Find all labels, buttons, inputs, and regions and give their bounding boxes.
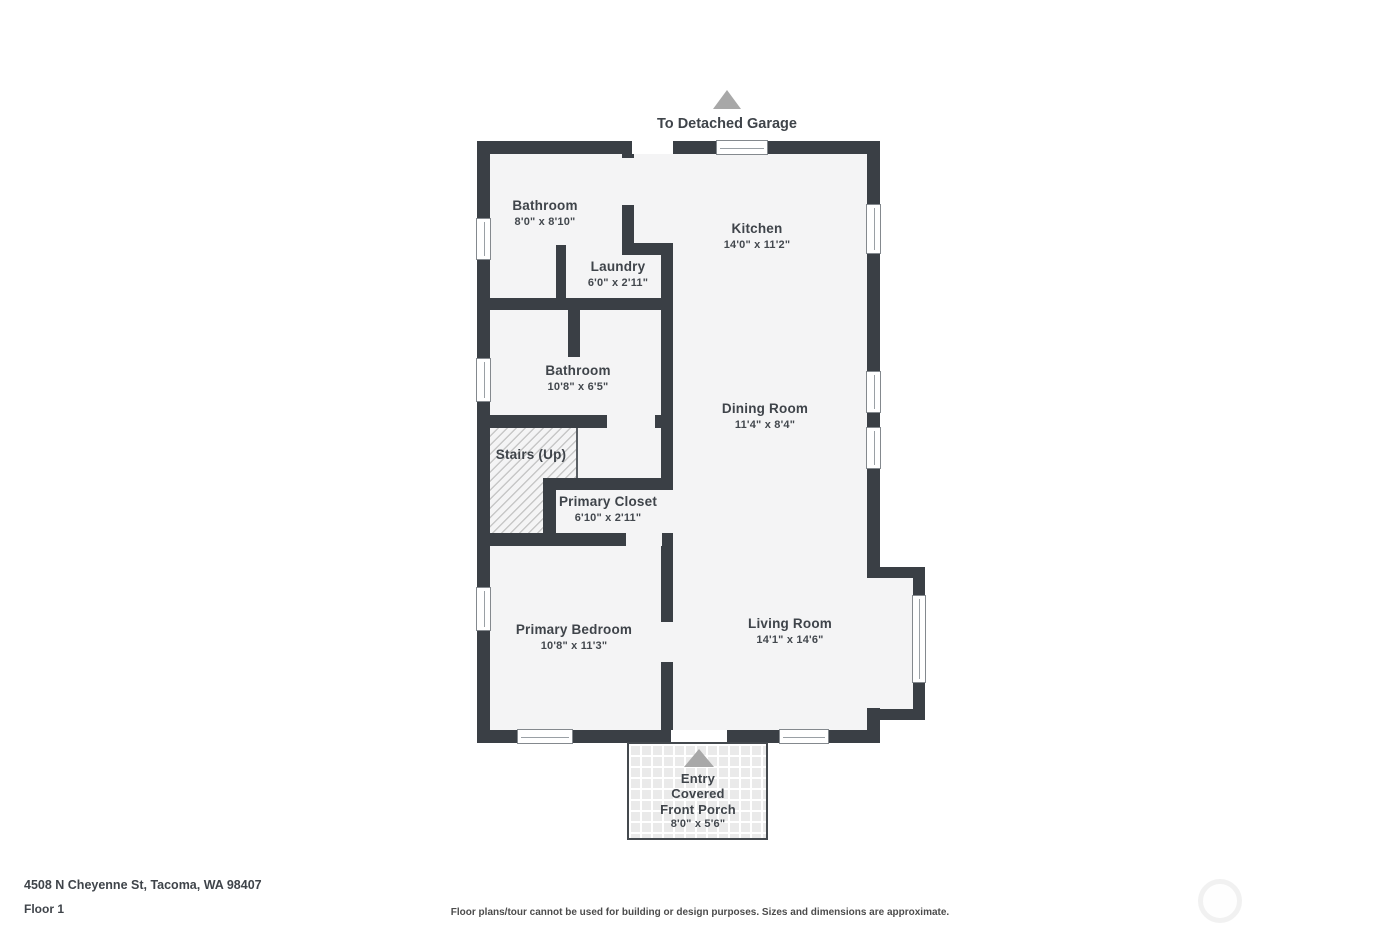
door-gap-bathroom-lower: [607, 415, 655, 428]
window-bathroom-lower: [476, 358, 491, 402]
label-primary-closet: Primary Closet 6'10" x 2'11": [559, 494, 657, 525]
label-bathroom-lower: Bathroom 10'8" x 6'5": [545, 363, 610, 394]
door-gap-closet: [626, 533, 662, 546]
label-laundry: Laundry 6'0" x 2'11": [588, 259, 648, 290]
label-primary-bedroom: Primary Bedroom 10'8" x 11'3": [516, 622, 632, 653]
door-gap-bedroom: [661, 622, 673, 662]
property-address: 4508 N Cheyenne St, Tacoma, WA 98407: [24, 878, 262, 892]
window-bedroom-left: [476, 587, 491, 631]
label-dining-room: Dining Room 11'4" x 8'4": [722, 401, 808, 432]
wall-laundry-stub: [556, 245, 566, 300]
label-kitchen: Kitchen 14'0" x 11'2": [724, 221, 791, 252]
label-bathroom-upper: Bathroom 8'0" x 8'10": [512, 198, 577, 229]
window-living-bay: [912, 595, 926, 683]
label-living-room: Living Room 14'1" x 14'6": [748, 616, 832, 647]
label-porch: Entry Covered Front Porch 8'0" x 5'6": [660, 771, 736, 831]
window-dining-1: [866, 371, 881, 413]
window-garage-door: [716, 140, 768, 155]
wall-closet-top: [543, 478, 673, 490]
label-stairs: Stairs (Up): [496, 447, 566, 463]
door-opening-garage-side: [632, 141, 673, 154]
window-bedroom-bottom: [517, 729, 573, 744]
entry-direction-arrow-icon: [684, 749, 714, 767]
stairs-edge-line: [576, 428, 578, 480]
window-living-bottom: [779, 729, 829, 744]
wall-bathroom-lower-stub: [568, 310, 580, 357]
wall-exterior-top: [477, 141, 880, 154]
compass-circle-icon: [1198, 879, 1242, 923]
garage-label: To Detached Garage: [657, 116, 797, 132]
window-bathroom-upper: [476, 218, 491, 260]
wall-bay-bottom: [867, 709, 925, 720]
garage-direction-arrow-icon: [713, 90, 741, 109]
disclaimer-text: Floor plans/tour cannot be used for buil…: [0, 907, 1400, 918]
floor-plan-page: To Detached Garage: [0, 0, 1400, 933]
window-kitchen: [866, 204, 881, 254]
wall-bathroom-divider: [477, 298, 673, 310]
window-dining-2: [866, 427, 881, 469]
